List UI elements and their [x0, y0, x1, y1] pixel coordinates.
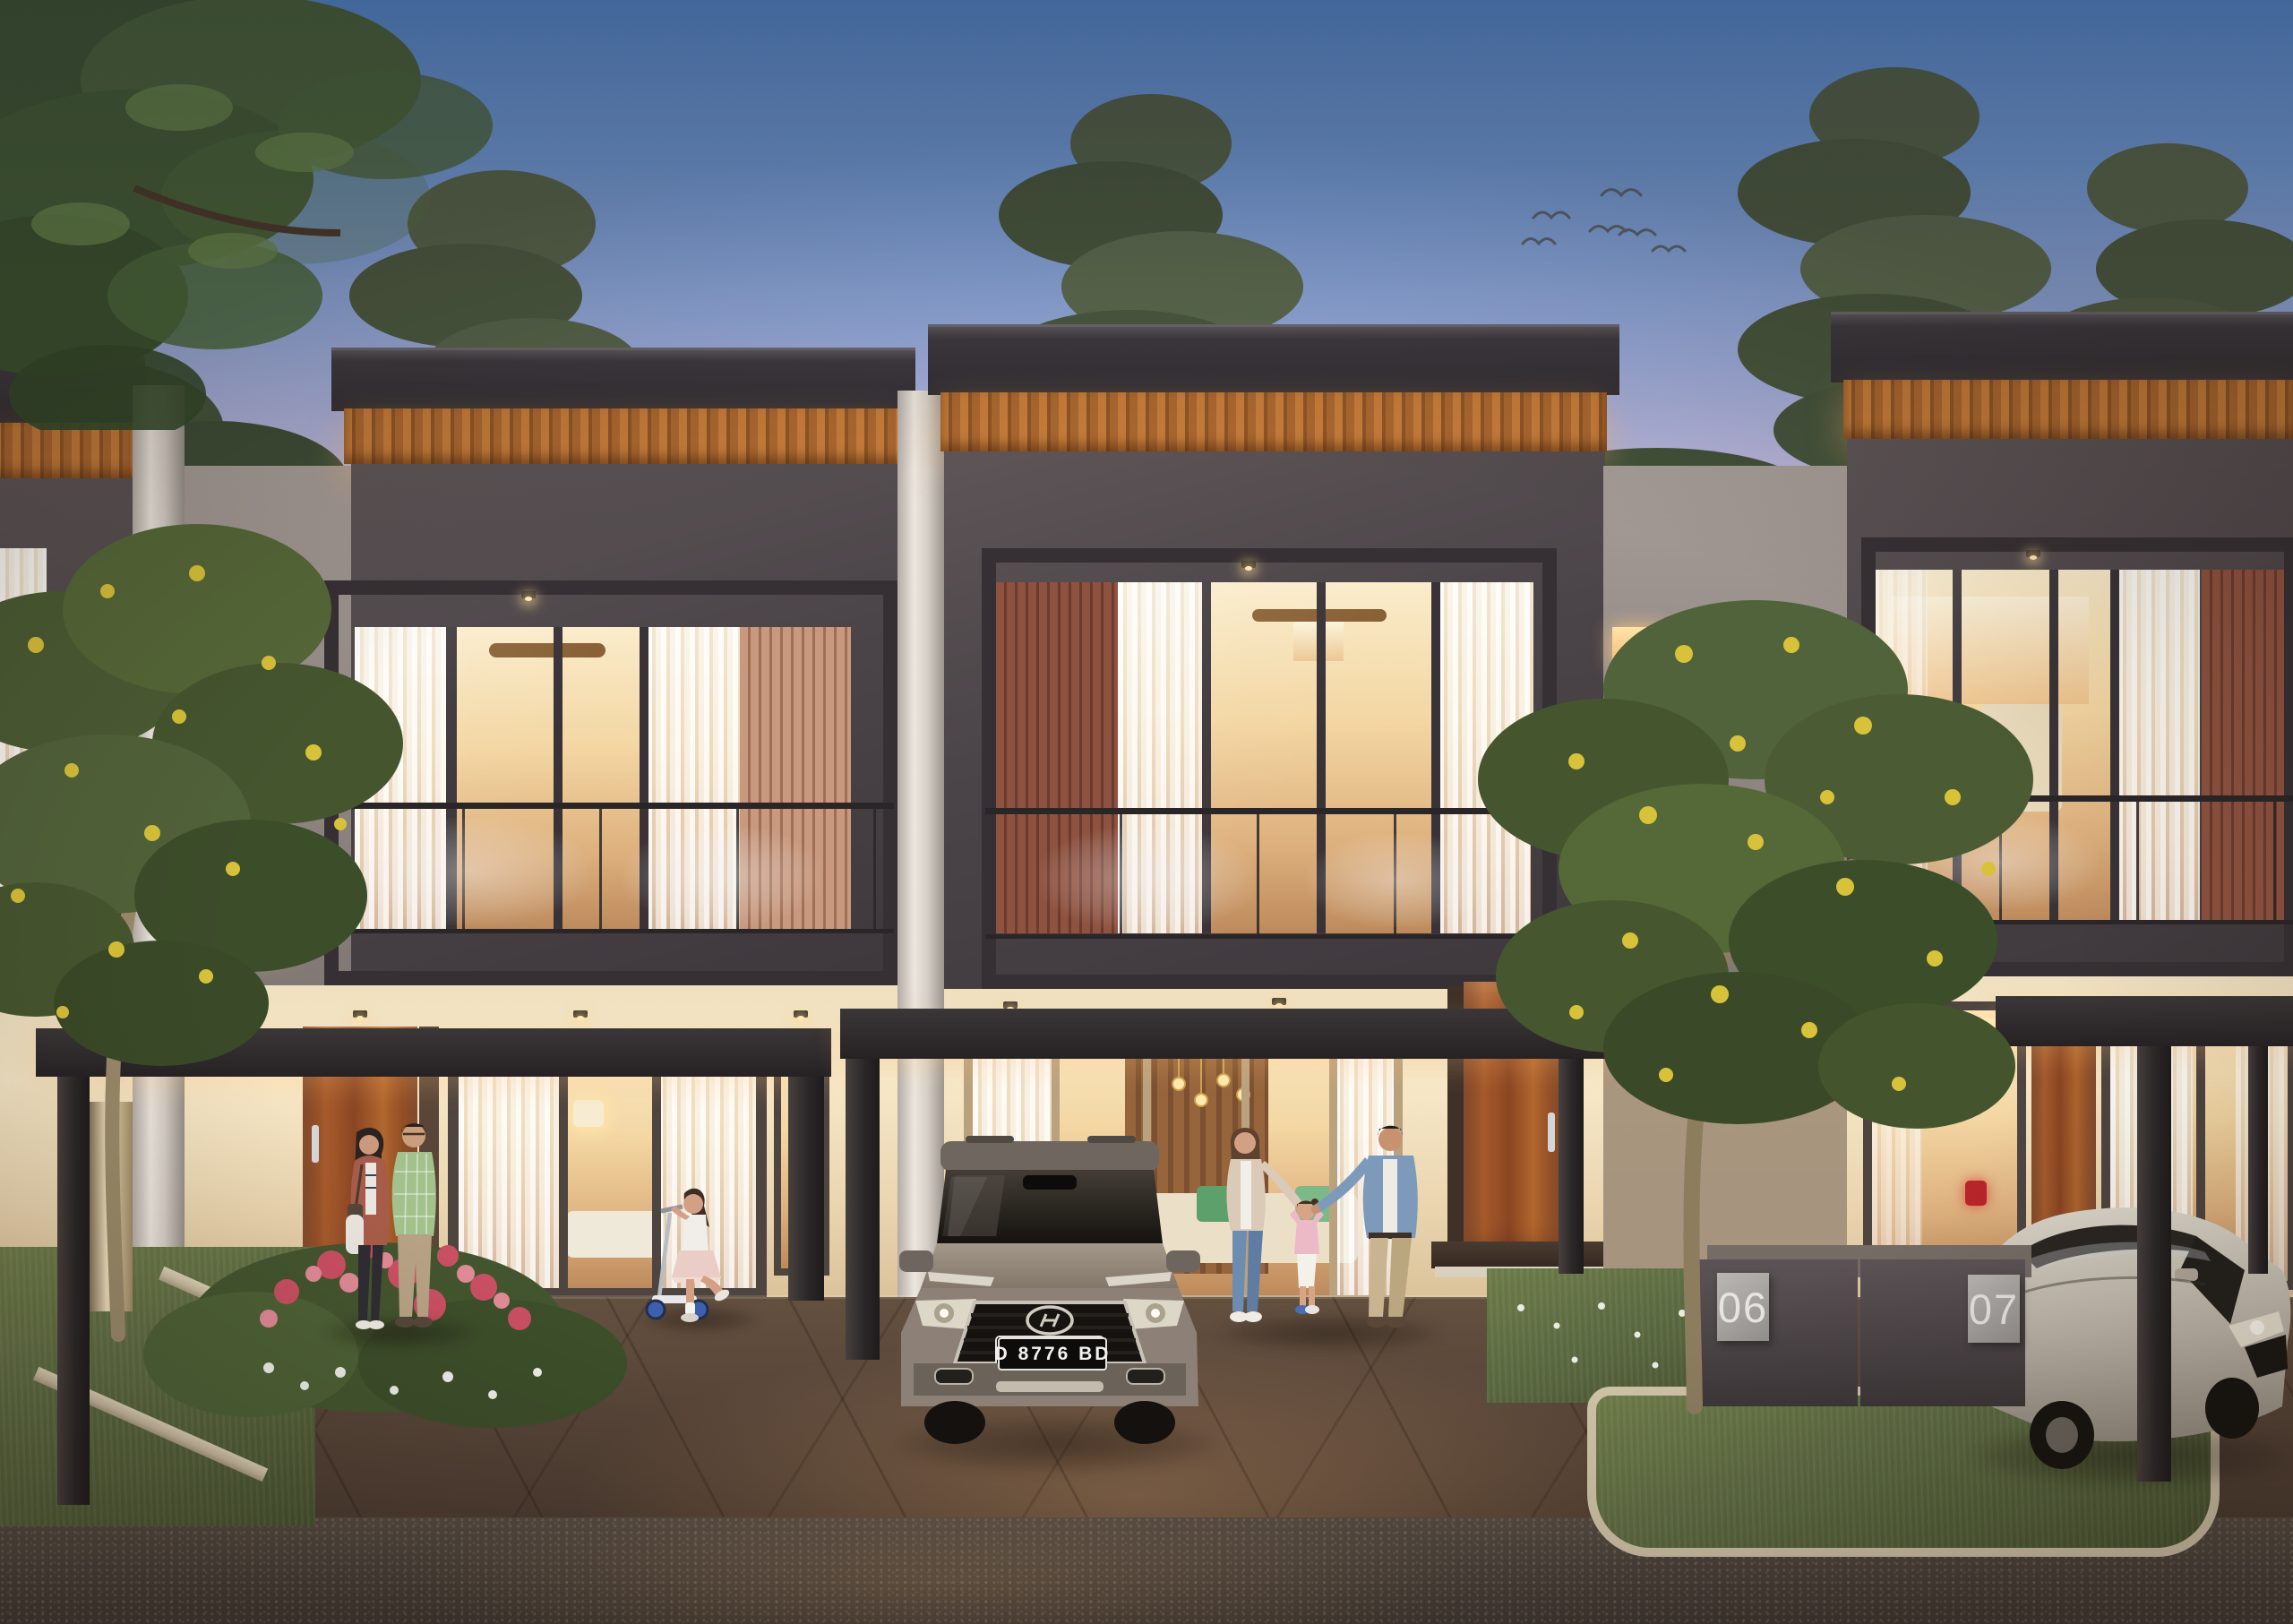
table-lamp-icon — [573, 1100, 604, 1127]
leaf-reflection — [623, 827, 820, 925]
carport-post — [846, 1059, 880, 1360]
porch-downlight — [794, 1010, 808, 1018]
balcony-downlight-house2 — [1241, 561, 1256, 568]
balcony-downlight-house1 — [521, 591, 536, 598]
girl-on-kick-scooter — [638, 1179, 745, 1333]
porch-downlight — [573, 1010, 588, 1018]
woman-rust-cardigan — [346, 1128, 390, 1329]
carport-post — [2248, 1046, 2268, 1274]
porch-downlight — [1003, 1001, 1018, 1009]
porch-downlight — [1272, 998, 1286, 1005]
scene-root: 06 07 — [0, 0, 2293, 1624]
leaf-reflection — [1039, 827, 1254, 931]
canopy-foliage — [0, 0, 493, 430]
fascia-house2 — [940, 392, 1607, 451]
family-walking — [1211, 1111, 1444, 1340]
roof-house3 — [1831, 312, 2293, 382]
overhanging-tree-canopy — [0, 0, 555, 430]
child-figure — [1290, 1199, 1324, 1314]
carport-post-front — [2137, 1046, 2171, 1482]
leaf-reflection — [1308, 834, 1487, 927]
fascia-house3 — [1843, 380, 2293, 439]
flying-birds-icon — [1523, 190, 1685, 252]
gray-hyundai-suv — [889, 1136, 1211, 1449]
yellow-flowering-tree-center — [1469, 546, 2078, 1424]
roof-house2 — [928, 324, 1619, 395]
father-figure — [1311, 1126, 1418, 1328]
man-plaid-shirt — [392, 1123, 436, 1328]
suv-body — [899, 1136, 1200, 1444]
mother-figure — [1227, 1128, 1305, 1322]
license-plate: D 8776 BD — [998, 1337, 1107, 1371]
carport-post — [788, 1077, 824, 1301]
couple-standing — [330, 1109, 455, 1342]
glass-railing-house2 — [985, 808, 1553, 939]
foliage — [0, 524, 403, 1066]
foliage — [1478, 600, 2033, 1129]
